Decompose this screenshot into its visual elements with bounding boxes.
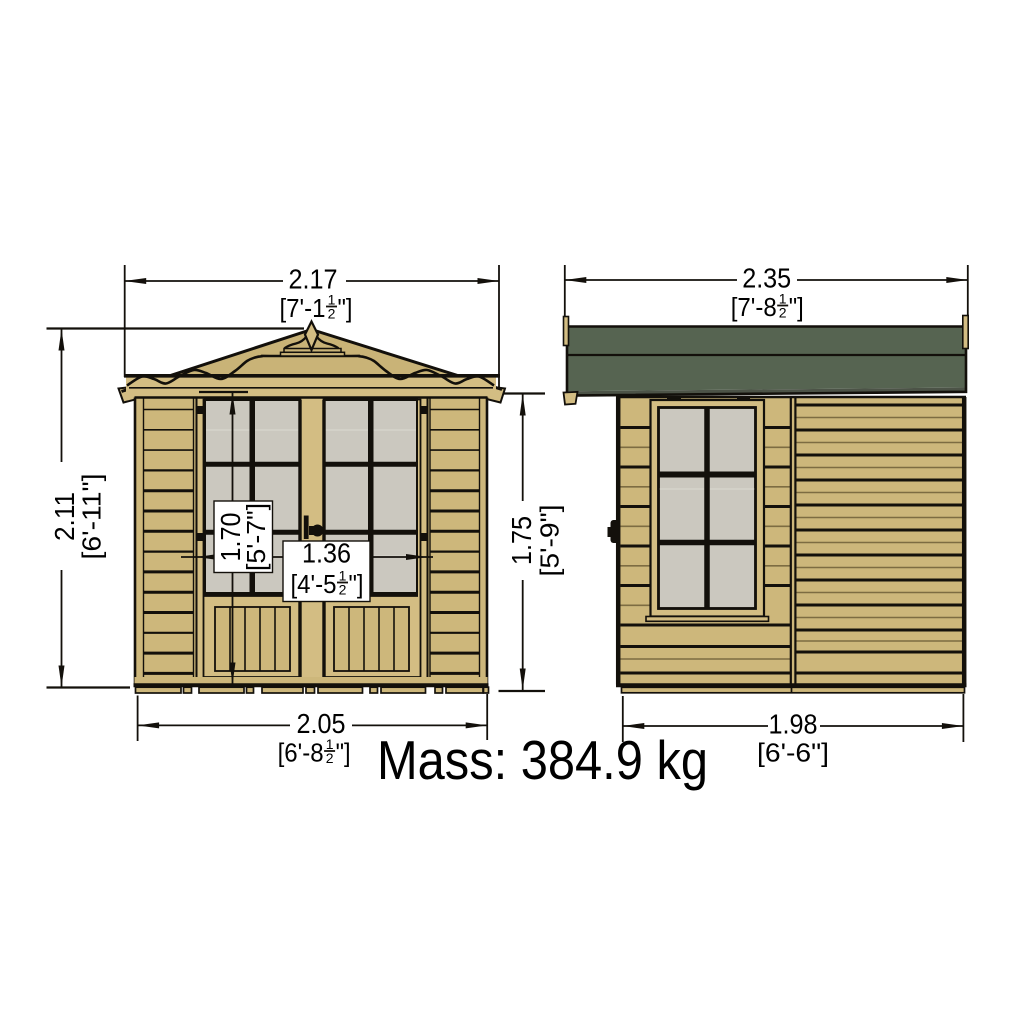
svg-text:[4'-5: [4'-5 — [291, 569, 337, 599]
svg-text:"]: "] — [349, 569, 364, 599]
svg-text:"]: "] — [338, 293, 353, 323]
svg-text:2: 2 — [779, 304, 787, 320]
svg-text:1.98: 1.98 — [769, 709, 818, 740]
svg-text:1.36: 1.36 — [302, 538, 351, 569]
svg-text:"]: "] — [336, 738, 351, 768]
svg-text:[7'-1: [7'-1 — [280, 293, 326, 323]
svg-text:[7'-8: [7'-8 — [731, 292, 777, 322]
svg-text:2.35: 2.35 — [742, 263, 791, 294]
svg-text:2: 2 — [326, 750, 334, 766]
svg-text:2: 2 — [339, 581, 347, 597]
svg-text:2.11: 2.11 — [49, 492, 80, 541]
svg-text:2: 2 — [328, 305, 336, 321]
svg-text:[6'-6"]: [6'-6"] — [757, 738, 829, 768]
svg-text:1.75: 1.75 — [506, 516, 537, 565]
svg-text:[5'-9"]: [5'-9"] — [535, 505, 565, 577]
svg-text:2.05: 2.05 — [297, 708, 346, 739]
svg-text:"]: "] — [789, 292, 804, 322]
svg-text:[6'-8: [6'-8 — [278, 738, 324, 768]
svg-text:[6'-11"]: [6'-11"] — [77, 474, 107, 560]
svg-text:2.17: 2.17 — [289, 264, 338, 295]
svg-text:[5'-7"]: [5'-7"] — [241, 503, 271, 571]
svg-text:Mass: 384.9 kg: Mass: 384.9 kg — [377, 729, 708, 791]
